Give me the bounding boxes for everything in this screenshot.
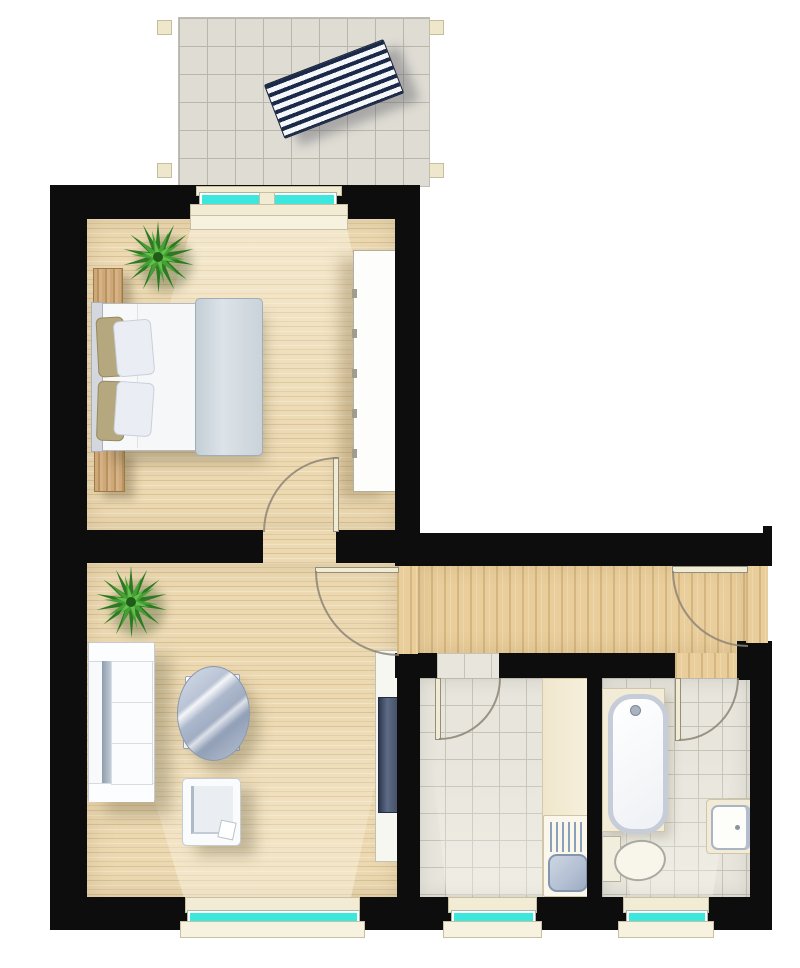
balcony-post <box>429 163 444 178</box>
plant-center <box>126 597 136 607</box>
sofa-backrest <box>102 661 111 783</box>
sofa-armrest <box>89 783 154 802</box>
floor-plan <box>0 0 800 968</box>
balcony-post <box>157 20 172 35</box>
kitchen-window <box>443 897 540 937</box>
wardrobe-handle <box>352 409 357 418</box>
wardrobe <box>353 250 397 492</box>
sofa-cushion <box>111 702 153 744</box>
potted-plant-bedroom <box>122 221 194 293</box>
living-room-door-opening <box>397 566 418 654</box>
bathroom-window <box>618 897 712 937</box>
bathtub-faucet <box>630 705 641 716</box>
entrance-niche <box>746 566 768 643</box>
balcony <box>0 0 800 190</box>
wall-hallway-top <box>395 533 770 566</box>
wall-right <box>750 678 772 930</box>
bed-pillow-white <box>113 318 156 377</box>
tv-screen <box>378 697 398 813</box>
window-outer-ledge <box>443 921 542 938</box>
wall-pillar-top-right <box>763 526 772 566</box>
wall-hallway-bottom-a <box>395 653 437 678</box>
tv-lowboard <box>375 650 399 862</box>
washbasin <box>706 799 753 854</box>
toilet <box>602 836 664 882</box>
wardrobe-handle <box>352 369 357 378</box>
sink-drainboard <box>550 822 582 852</box>
balcony-post <box>429 20 444 35</box>
nightstand-bottom <box>94 448 125 492</box>
wall-living-room-right <box>397 654 420 897</box>
wall-bedroom-living-left <box>50 530 263 563</box>
wall-kitchen-bathroom-divider <box>587 653 602 930</box>
wardrobe-handle <box>352 289 357 298</box>
sofa-cushion <box>111 661 153 703</box>
living-room-window <box>180 897 363 937</box>
sofa <box>88 642 155 802</box>
bathroom-door-opening <box>675 653 737 678</box>
wardrobe-handle <box>352 329 357 338</box>
armchair-cushion-corner <box>217 820 236 841</box>
kitchen-sink-unit <box>543 815 589 897</box>
kitchen-door-opening <box>437 653 499 678</box>
wall-bedroom-right <box>395 185 420 535</box>
table-glass-top <box>177 666 250 761</box>
bathtub-surround <box>602 688 665 832</box>
double-bed <box>91 300 263 452</box>
balcony-window-door <box>186 185 348 230</box>
sofa-armrest <box>89 643 154 662</box>
sink-basin <box>548 854 588 892</box>
potted-plant-living-room <box>95 566 167 638</box>
window-outer-ledge <box>180 921 365 938</box>
washbasin-drain <box>735 825 740 830</box>
wardrobe-handle <box>352 449 357 458</box>
washbasin-bowl <box>711 805 751 850</box>
window-inner-ledge <box>190 215 348 230</box>
balcony-post <box>157 163 172 178</box>
window-outer-ledge <box>618 921 714 938</box>
coffee-table <box>177 666 248 759</box>
bed-blanket <box>195 298 263 456</box>
sofa-cushion <box>111 743 153 785</box>
bedroom-door-opening <box>263 530 336 563</box>
bathtub <box>608 694 668 834</box>
table-glass-highlight <box>178 667 249 760</box>
armchair <box>182 778 241 846</box>
plant-center <box>153 252 163 262</box>
bed-pillow-white <box>113 381 155 438</box>
